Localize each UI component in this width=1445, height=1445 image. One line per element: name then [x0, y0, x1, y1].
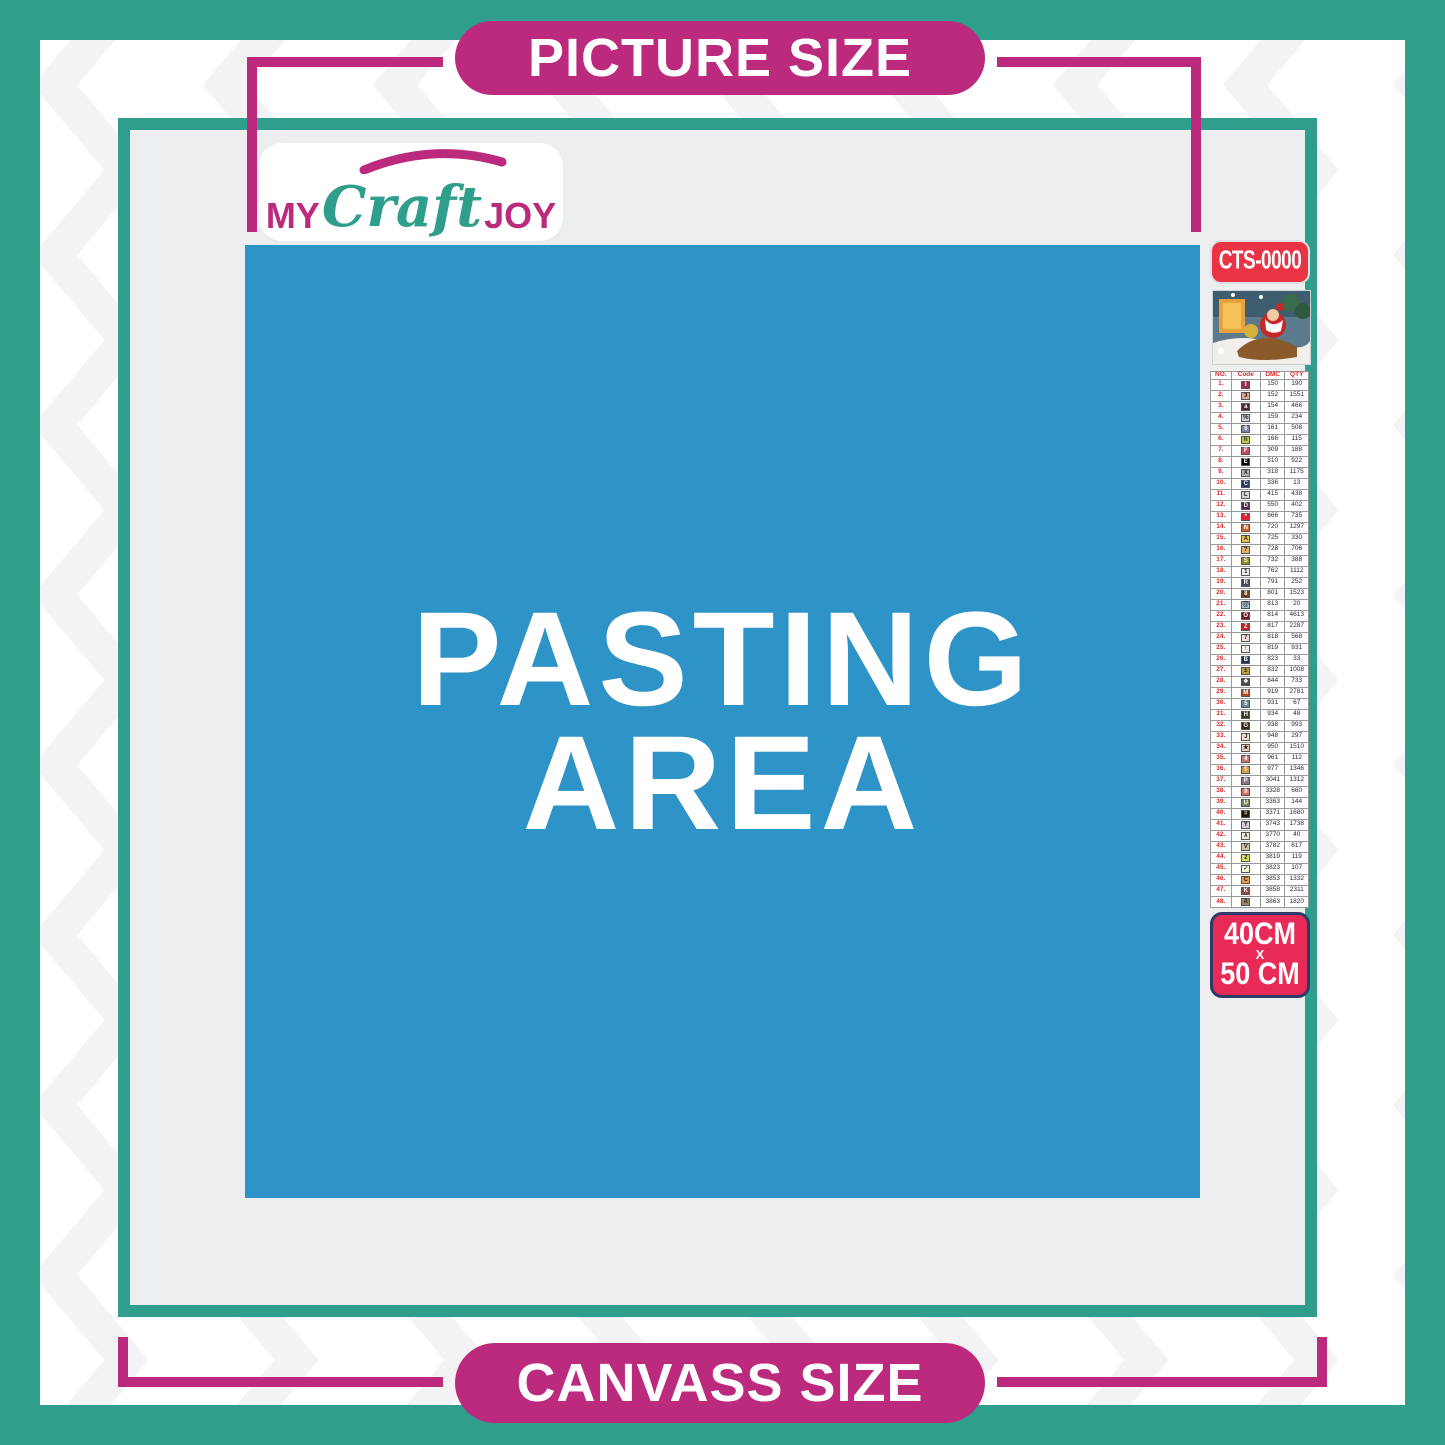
legend-cell-code: A [1231, 533, 1260, 544]
legend-cell-dmc: 813 [1260, 599, 1285, 610]
legend-cell-no: 6. [1211, 434, 1232, 445]
legend-cell-code: a [1231, 401, 1260, 412]
legend-cell-code: V [1231, 841, 1260, 852]
symbol-chip: A [1241, 898, 1250, 906]
legend-cell-no: 32. [1211, 720, 1232, 731]
symbol-chip: E [1241, 458, 1250, 466]
legend-cell-qty: 1312 [1285, 775, 1309, 786]
legend-cell-dmc: 666 [1260, 511, 1285, 522]
legend-cell-qty: 144 [1285, 797, 1309, 808]
legend-cell-no: 24. [1211, 632, 1232, 643]
symbol-chip: a [1241, 403, 1250, 411]
legend-cell-qty: 190 [1285, 379, 1309, 390]
legend-cell-code: G [1231, 720, 1260, 731]
picture-size-label: PICTURE SIZE [528, 27, 912, 89]
legend-cell-qty: 115 [1285, 434, 1309, 445]
legend-cell-no: 7. [1211, 445, 1232, 456]
symbol-chip: U [1241, 799, 1250, 807]
legend-cell-code: C [1231, 478, 1260, 489]
legend-cell-qty: 107 [1285, 863, 1309, 874]
symbol-chip: % [1241, 414, 1250, 422]
legend-cell-qty: 13 [1285, 478, 1309, 489]
legend-row: 28.❖844733 [1211, 676, 1309, 687]
legend-cell-dmc: 154 [1260, 401, 1285, 412]
symbol-chip: 6 [1241, 425, 1250, 433]
legend-cell-qty: 438 [1285, 489, 1309, 500]
legend-row: 35.4961112 [1211, 753, 1309, 764]
legend-cell-code: 3 [1231, 390, 1260, 401]
legend-cell-code: ? [1231, 544, 1260, 555]
legend-cell-no: 5. [1211, 423, 1232, 434]
logo-swash-icon [358, 148, 508, 174]
legend-cell-dmc: 3743 [1260, 819, 1285, 830]
legend-cell-dmc: 161 [1260, 423, 1285, 434]
picture-size-banner: PICTURE SIZE [455, 21, 985, 95]
legend-cell-no: 29. [1211, 687, 1232, 698]
legend-cell-dmc: 950 [1260, 742, 1285, 753]
symbol-chip: O [1241, 612, 1250, 620]
symbol-chip: @ [1241, 601, 1250, 609]
legend-row: 12.D550402 [1211, 500, 1309, 511]
legend-cell-qty: 508 [1285, 423, 1309, 434]
legend-row: 44.23819119 [1211, 852, 1309, 863]
legend-cell-qty: 1346 [1285, 764, 1309, 775]
legend-cell-code: t [1231, 379, 1260, 390]
legend-cell-no: 27. [1211, 665, 1232, 676]
legend-cell-dmc: 819 [1260, 643, 1285, 654]
legend-cell-code: 1 [1231, 566, 1260, 577]
legend-row: 36.T9771346 [1211, 764, 1309, 775]
canvas-layout-sheet: PASTING AREA PICTURE SIZE CANVASS SIZE M… [0, 0, 1445, 1445]
legend-cell-qty: 1523 [1285, 588, 1309, 599]
canvass-size-label: CANVASS SIZE [516, 1352, 923, 1414]
legend-row: 11.L415438 [1211, 489, 1309, 500]
legend-cell-code: ★ [1231, 742, 1260, 753]
legend-cell-code: * [1231, 511, 1260, 522]
legend-header-no: NO. [1211, 372, 1232, 380]
legend-row: 13.*666735 [1211, 511, 1309, 522]
legend-cell-code: = [1231, 808, 1260, 819]
legend-cell-no: 22. [1211, 610, 1232, 621]
legend-cell-dmc: 150 [1260, 379, 1285, 390]
sku-label: CTS-0000 [1219, 247, 1302, 277]
symbol-chip: N [1241, 524, 1250, 532]
legend-cell-qty: 617 [1285, 841, 1309, 852]
legend-row: 5.6161508 [1211, 423, 1309, 434]
legend-cell-no: 44. [1211, 852, 1232, 863]
legend-row: 25.↑819931 [1211, 643, 1309, 654]
legend-cell-qty: 119 [1285, 852, 1309, 863]
legend-cell-dmc: 762 [1260, 566, 1285, 577]
legend-cell-no: 12. [1211, 500, 1232, 511]
symbol-chip: P [1241, 777, 1250, 785]
legend-row: 7.F309188 [1211, 445, 1309, 456]
legend-cell-no: 40. [1211, 808, 1232, 819]
legend-row: 23.Z8172287 [1211, 621, 1309, 632]
legend-cell-qty: 1297 [1285, 522, 1309, 533]
logo-word-my: MY [266, 200, 320, 232]
legend-cell-dmc: 961 [1260, 753, 1285, 764]
symbol-chip: J [1241, 733, 1250, 741]
symbol-chip: ❖ [1241, 678, 1250, 686]
symbol-chip: * [1241, 513, 1250, 521]
logo-word-craft: Craft [322, 185, 482, 230]
legend-cell-no: 36. [1211, 764, 1232, 775]
legend-cell-code: N [1231, 522, 1260, 533]
legend-cell-code: B [1231, 654, 1260, 665]
legend-cell-dmc: 415 [1260, 489, 1285, 500]
legend-cell-dmc: 3770 [1260, 830, 1285, 841]
symbol-chip: h [1241, 436, 1250, 444]
symbol-chip: ★ [1241, 744, 1250, 752]
legend-cell-no: 47. [1211, 885, 1232, 896]
legend-cell-dmc: 152 [1260, 390, 1285, 401]
legend-cell-dmc: 3863 [1260, 896, 1285, 908]
size-badge: 40CM X 50 CM [1210, 912, 1310, 998]
legend-cell-no: 19. [1211, 577, 1232, 588]
legend-cell-no: 35. [1211, 753, 1232, 764]
legend-cell-qty: 234 [1285, 412, 1309, 423]
legend-row: 42.∧377040 [1211, 830, 1309, 841]
legend-cell-code: ✓ [1231, 863, 1260, 874]
legend-cell-code: ∧ [1231, 830, 1260, 841]
legend-cell-no: 42. [1211, 830, 1232, 841]
legend-cell-qty: 2287 [1285, 621, 1309, 632]
legend-cell-dmc: 3371 [1260, 808, 1285, 819]
legend-cell-dmc: 832 [1260, 665, 1285, 676]
legend-cell-qty: 993 [1285, 720, 1309, 731]
legend-cell-dmc: 310 [1260, 456, 1285, 467]
legend-row: 15.A725330 [1211, 533, 1309, 544]
canvass-size-banner: CANVASS SIZE [455, 1343, 985, 1423]
legend-cell-no: 16. [1211, 544, 1232, 555]
legend-row: 38.93328660 [1211, 786, 1309, 797]
legend-cell-no: 9. [1211, 467, 1232, 478]
legend-cell-no: 43. [1211, 841, 1232, 852]
symbol-chip: ↑ [1241, 645, 1250, 653]
symbol-chip: X [1241, 469, 1250, 477]
symbol-chip: T [1241, 766, 1250, 774]
symbol-chip: C [1241, 480, 1250, 488]
legend-cell-dmc: 3858 [1260, 885, 1285, 896]
symbol-chip: F [1241, 447, 1250, 455]
symbol-chip: C [1241, 876, 1250, 884]
sku-badge: CTS-0000 [1212, 242, 1308, 282]
legend-cell-code: 8 [1231, 588, 1260, 599]
legend-cell-qty: 252 [1285, 577, 1309, 588]
legend-cell-no: 20. [1211, 588, 1232, 599]
legend-cell-no: 21. [1211, 599, 1232, 610]
symbol-chip: ∧ [1241, 832, 1250, 840]
legend-cell-no: 37. [1211, 775, 1232, 786]
legend-cell-no: 17. [1211, 555, 1232, 566]
legend-cell-dmc: 336 [1260, 478, 1285, 489]
preview-image [1213, 291, 1310, 364]
legend-cell-code: C [1231, 874, 1260, 885]
legend-cell-qty: 1175 [1285, 467, 1309, 478]
legend-cell-dmc: 732 [1260, 555, 1285, 566]
legend-cell-code: Z [1231, 621, 1260, 632]
legend-cell-no: 31. [1211, 709, 1232, 720]
legend-row: 4.%159234 [1211, 412, 1309, 423]
symbol-chip: S [1241, 557, 1250, 565]
legend-cell-qty: 1510 [1285, 742, 1309, 753]
legend-cell-dmc: 550 [1260, 500, 1285, 511]
legend-row: 10.C33613 [1211, 478, 1309, 489]
legend-cell-code: J [1231, 731, 1260, 742]
legend-cell-qty: 1112 [1285, 566, 1309, 577]
picture-size-bracket-top-left [247, 57, 443, 67]
symbol-chip: 3 [1241, 392, 1250, 400]
legend-cell-qty: 466 [1285, 401, 1309, 412]
symbol-chip: K [1241, 887, 1250, 895]
legend-cell-dmc: 728 [1260, 544, 1285, 555]
legend-row: 41.Y37431738 [1211, 819, 1309, 830]
legend-cell-qty: 48 [1285, 709, 1309, 720]
legend-cell-qty: 735 [1285, 511, 1309, 522]
legend-cell-code: 7 [1231, 632, 1260, 643]
brand-logo: MY Craft JOY [262, 146, 560, 238]
legend-row: 31.H93448 [1211, 709, 1309, 720]
legend-header-code: Code [1231, 372, 1260, 380]
legend-cell-dmc: 3853 [1260, 874, 1285, 885]
legend-cell-code: 5 [1231, 698, 1260, 709]
legend-cell-code: S [1231, 555, 1260, 566]
legend-cell-no: 2. [1211, 390, 1232, 401]
canvass-size-bracket-bottom-right [997, 1377, 1327, 1387]
legend-cell-no: 39. [1211, 797, 1232, 808]
legend-cell-no: 48. [1211, 896, 1232, 908]
legend-cell-dmc: 3782 [1260, 841, 1285, 852]
legend-cell-qty: 706 [1285, 544, 1309, 555]
legend-cell-code: @ [1231, 599, 1260, 610]
legend-cell-code: U [1231, 797, 1260, 808]
legend-cell-no: 46. [1211, 874, 1232, 885]
legend-cell-qty: 733 [1285, 676, 1309, 687]
legend-cell-dmc: 823 [1260, 654, 1285, 665]
legend-row: 37.P30411312 [1211, 775, 1309, 786]
legend-cell-no: 33. [1211, 731, 1232, 742]
symbol-chip: V [1241, 843, 1250, 851]
legend-row: 45.✓3823107 [1211, 863, 1309, 874]
legend-cell-qty: 660 [1285, 786, 1309, 797]
legend-cell-code: 4 [1231, 753, 1260, 764]
legend-cell-code: P [1231, 775, 1260, 786]
legend-row: 24.7818568 [1211, 632, 1309, 643]
legend-cell-qty: 2311 [1285, 885, 1309, 896]
symbol-chip: ? [1241, 546, 1250, 554]
symbol-chip: M [1241, 689, 1250, 697]
pasting-area: PASTING AREA [245, 245, 1200, 1198]
legend-cell-code: X [1231, 467, 1260, 478]
legend-cell-code: M [1231, 687, 1260, 698]
legend-row: 19.R791252 [1211, 577, 1309, 588]
legend-row: 9.X3181175 [1211, 467, 1309, 478]
legend-cell-dmc: 3041 [1260, 775, 1285, 786]
legend-row: 29.M9192781 [1211, 687, 1309, 698]
symbol-chip: 7 [1241, 634, 1250, 642]
legend-cell-no: 26. [1211, 654, 1232, 665]
picture-size-bracket-left [247, 57, 257, 232]
symbol-chip: D [1241, 502, 1250, 510]
legend-cell-code: 9 [1231, 786, 1260, 797]
legend-cell-code: ↑ [1231, 643, 1260, 654]
symbol-chip: Z [1241, 623, 1250, 631]
symbol-chip: 1 [1241, 568, 1250, 576]
legend-header-qty: QTY [1285, 372, 1309, 380]
legend-cell-code: R [1231, 577, 1260, 588]
symbol-chip: H [1241, 711, 1250, 719]
legend-row: 30.593167 [1211, 698, 1309, 709]
legend-row: 21.@81320 [1211, 599, 1309, 610]
picture-size-bracket-right [1191, 57, 1201, 232]
symbol-chip: ✓ [1241, 865, 1250, 873]
legend-cell-no: 34. [1211, 742, 1232, 753]
legend-cell-qty: 330 [1285, 533, 1309, 544]
legend-row: 17.S732388 [1211, 555, 1309, 566]
legend-row: 2.31521551 [1211, 390, 1309, 401]
legend-cell-code: ❖ [1231, 676, 1260, 687]
legend-cell-dmc: 318 [1260, 467, 1285, 478]
legend-cell-code: % [1231, 412, 1260, 423]
size-height-label: 50 CM [1220, 960, 1300, 989]
legend-row: 18.17621112 [1211, 566, 1309, 577]
legend-cell-dmc: 3823 [1260, 863, 1285, 874]
legend-cell-code: L [1231, 489, 1260, 500]
legend-cell-qty: 297 [1285, 731, 1309, 742]
legend-cell-dmc: 3819 [1260, 852, 1285, 863]
legend-row: 26.B82333 [1211, 654, 1309, 665]
picture-size-bracket-top-right [997, 57, 1201, 67]
legend-cell-qty: 188 [1285, 445, 1309, 456]
legend-cell-qty: 568 [1285, 632, 1309, 643]
legend-cell-dmc: 948 [1260, 731, 1285, 742]
legend-cell-qty: 2781 [1285, 687, 1309, 698]
canvass-size-bracket-right [1317, 1337, 1327, 1387]
legend-cell-code: K [1231, 885, 1260, 896]
legend-cell-qty: 4613 [1285, 610, 1309, 621]
size-width-label: 40CM [1224, 920, 1296, 949]
legend-cell-dmc: 3328 [1260, 786, 1285, 797]
legend-cell-no: 1. [1211, 379, 1232, 390]
legend-cell-no: 41. [1211, 819, 1232, 830]
legend-row: 3.a154466 [1211, 401, 1309, 412]
legend-cell-no: 18. [1211, 566, 1232, 577]
legend-row: 16.?728706 [1211, 544, 1309, 555]
legend-cell-no: 28. [1211, 676, 1232, 687]
legend-cell-no: 10. [1211, 478, 1232, 489]
legend-row: 46.C38531332 [1211, 874, 1309, 885]
legend-cell-no: 15. [1211, 533, 1232, 544]
legend-row: 33.J948297 [1211, 731, 1309, 742]
symbol-chip: t [1241, 381, 1250, 389]
legend-row: 48.A38631820 [1211, 896, 1309, 908]
symbol-chip: A [1241, 535, 1250, 543]
legend-row: 14.N7201297 [1211, 522, 1309, 533]
canvass-size-bracket-bottom-left [118, 1377, 443, 1387]
symbol-chip: 8 [1241, 590, 1250, 598]
legend-cell-no: 25. [1211, 643, 1232, 654]
symbol-chip: = [1241, 810, 1250, 818]
symbol-chip: 4 [1241, 755, 1250, 763]
legend-cell-dmc: 159 [1260, 412, 1285, 423]
legend-cell-dmc: 844 [1260, 676, 1285, 687]
legend-cell-qty: 1332 [1285, 874, 1309, 885]
legend-cell-no: 30. [1211, 698, 1232, 709]
legend-cell-qty: 1738 [1285, 819, 1309, 830]
legend-cell-qty: 922 [1285, 456, 1309, 467]
legend-cell-no: 45. [1211, 863, 1232, 874]
symbol-chip: 2 [1241, 854, 1250, 862]
symbol-chip: B [1241, 656, 1250, 664]
legend-cell-dmc: 919 [1260, 687, 1285, 698]
legend-body: 1.t1501902.315215513.a1544664.%1592345.6… [1211, 379, 1309, 908]
legend-cell-dmc: 3363 [1260, 797, 1285, 808]
legend-cell-qty: 67 [1285, 698, 1309, 709]
legend-cell-qty: 388 [1285, 555, 1309, 566]
legend-cell-code: O [1231, 610, 1260, 621]
legend-cell-qty: 931 [1285, 643, 1309, 654]
symbol-chip: R [1241, 579, 1250, 587]
legend-cell-dmc: 720 [1260, 522, 1285, 533]
legend-cell-no: 13. [1211, 511, 1232, 522]
legend-cell-code: H [1231, 709, 1260, 720]
legend-row: 32.G938993 [1211, 720, 1309, 731]
symbol-chip: ± [1241, 667, 1250, 675]
legend-cell-dmc: 309 [1260, 445, 1285, 456]
legend-row: 43.V3782617 [1211, 841, 1309, 852]
legend-cell-dmc: 814 [1260, 610, 1285, 621]
legend-cell-qty: 112 [1285, 753, 1309, 764]
legend-cell-dmc: 934 [1260, 709, 1285, 720]
legend-cell-dmc: 818 [1260, 632, 1285, 643]
logo-word-joy: JOY [484, 200, 556, 232]
legend-cell-dmc: 166 [1260, 434, 1285, 445]
legend-cell-qty: 33 [1285, 654, 1309, 665]
legend-cell-code: h [1231, 434, 1260, 445]
legend-cell-code: E [1231, 456, 1260, 467]
legend-cell-no: 11. [1211, 489, 1232, 500]
legend-cell-no: 23. [1211, 621, 1232, 632]
legend-cell-dmc: 801 [1260, 588, 1285, 599]
legend-row: 39.U3363144 [1211, 797, 1309, 808]
legend-cell-no: 14. [1211, 522, 1232, 533]
legend-header-dmc: DMC [1260, 372, 1285, 380]
legend-row: 1.t150190 [1211, 379, 1309, 390]
legend-cell-code: T [1231, 764, 1260, 775]
legend-cell-code: F [1231, 445, 1260, 456]
symbol-chip: G [1241, 722, 1250, 730]
legend-cell-dmc: 817 [1260, 621, 1285, 632]
legend-cell-qty: 1680 [1285, 808, 1309, 819]
legend-cell-code: 2 [1231, 852, 1260, 863]
legend-row: 27.±8321008 [1211, 665, 1309, 676]
legend-cell-code: D [1231, 500, 1260, 511]
legend-cell-no: 8. [1211, 456, 1232, 467]
legend-cell-qty: 20 [1285, 599, 1309, 610]
pasting-area-label: PASTING AREA [412, 598, 1033, 845]
symbol-chip: 9 [1241, 788, 1250, 796]
legend-table: NO. Code DMC QTY 1.t1501902.315215513.a1… [1210, 371, 1309, 908]
legend-cell-code: A [1231, 896, 1260, 908]
legend-cell-qty: 40 [1285, 830, 1309, 841]
legend-cell-code: ± [1231, 665, 1260, 676]
legend-cell-no: 4. [1211, 412, 1232, 423]
legend-cell-code: Y [1231, 819, 1260, 830]
canvass-size-bracket-left [118, 1337, 128, 1387]
symbol-chip: Y [1241, 821, 1250, 829]
legend-row: 47.K38582311 [1211, 885, 1309, 896]
